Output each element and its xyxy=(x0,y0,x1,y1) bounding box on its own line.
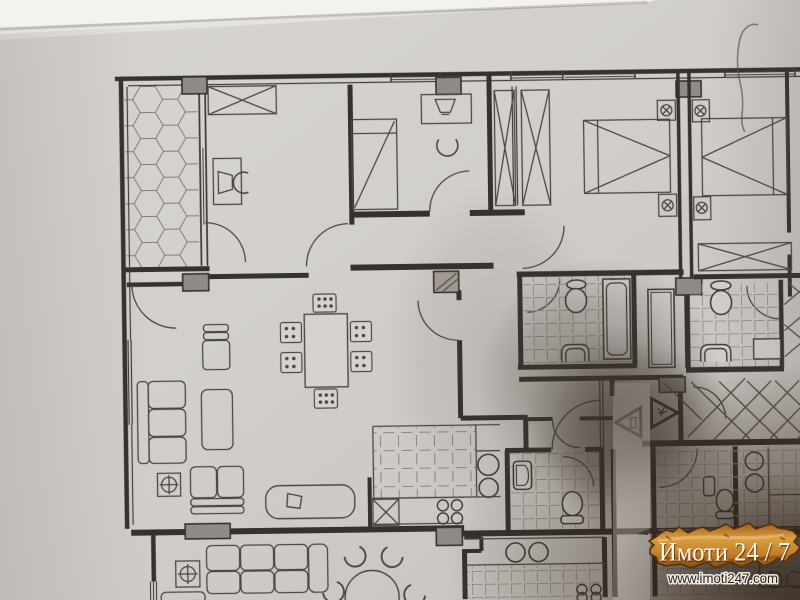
svg-text:Имоти 24 / 7: Имоти 24 / 7 xyxy=(659,537,790,567)
svg-text:www.imoti247.com: www.imoti247.com xyxy=(667,570,778,586)
